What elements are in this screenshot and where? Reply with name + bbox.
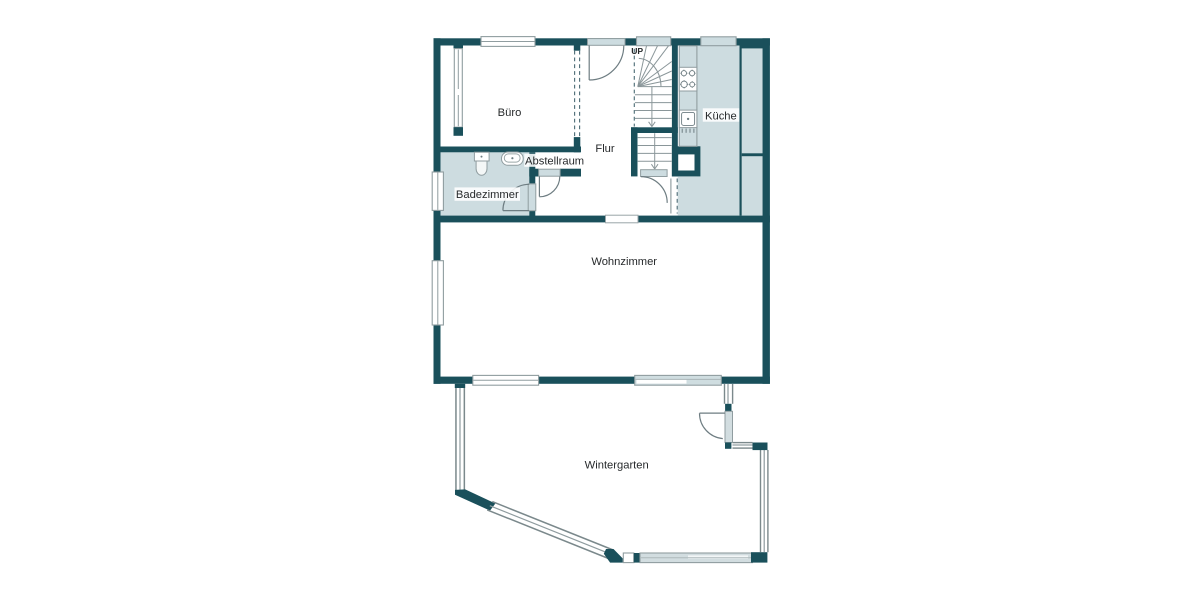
svg-text:Wintergarten: Wintergarten [585,460,649,472]
svg-text:Büro: Büro [498,107,522,119]
svg-text:Abstellraum: Abstellraum [525,156,584,168]
svg-text:Wohnzimmer: Wohnzimmer [591,256,657,268]
svg-text:Flur: Flur [595,143,615,155]
svg-text:Badezimmer: Badezimmer [456,189,519,201]
svg-text:Küche: Küche [705,110,737,122]
svg-text:UP: UP [631,46,643,56]
